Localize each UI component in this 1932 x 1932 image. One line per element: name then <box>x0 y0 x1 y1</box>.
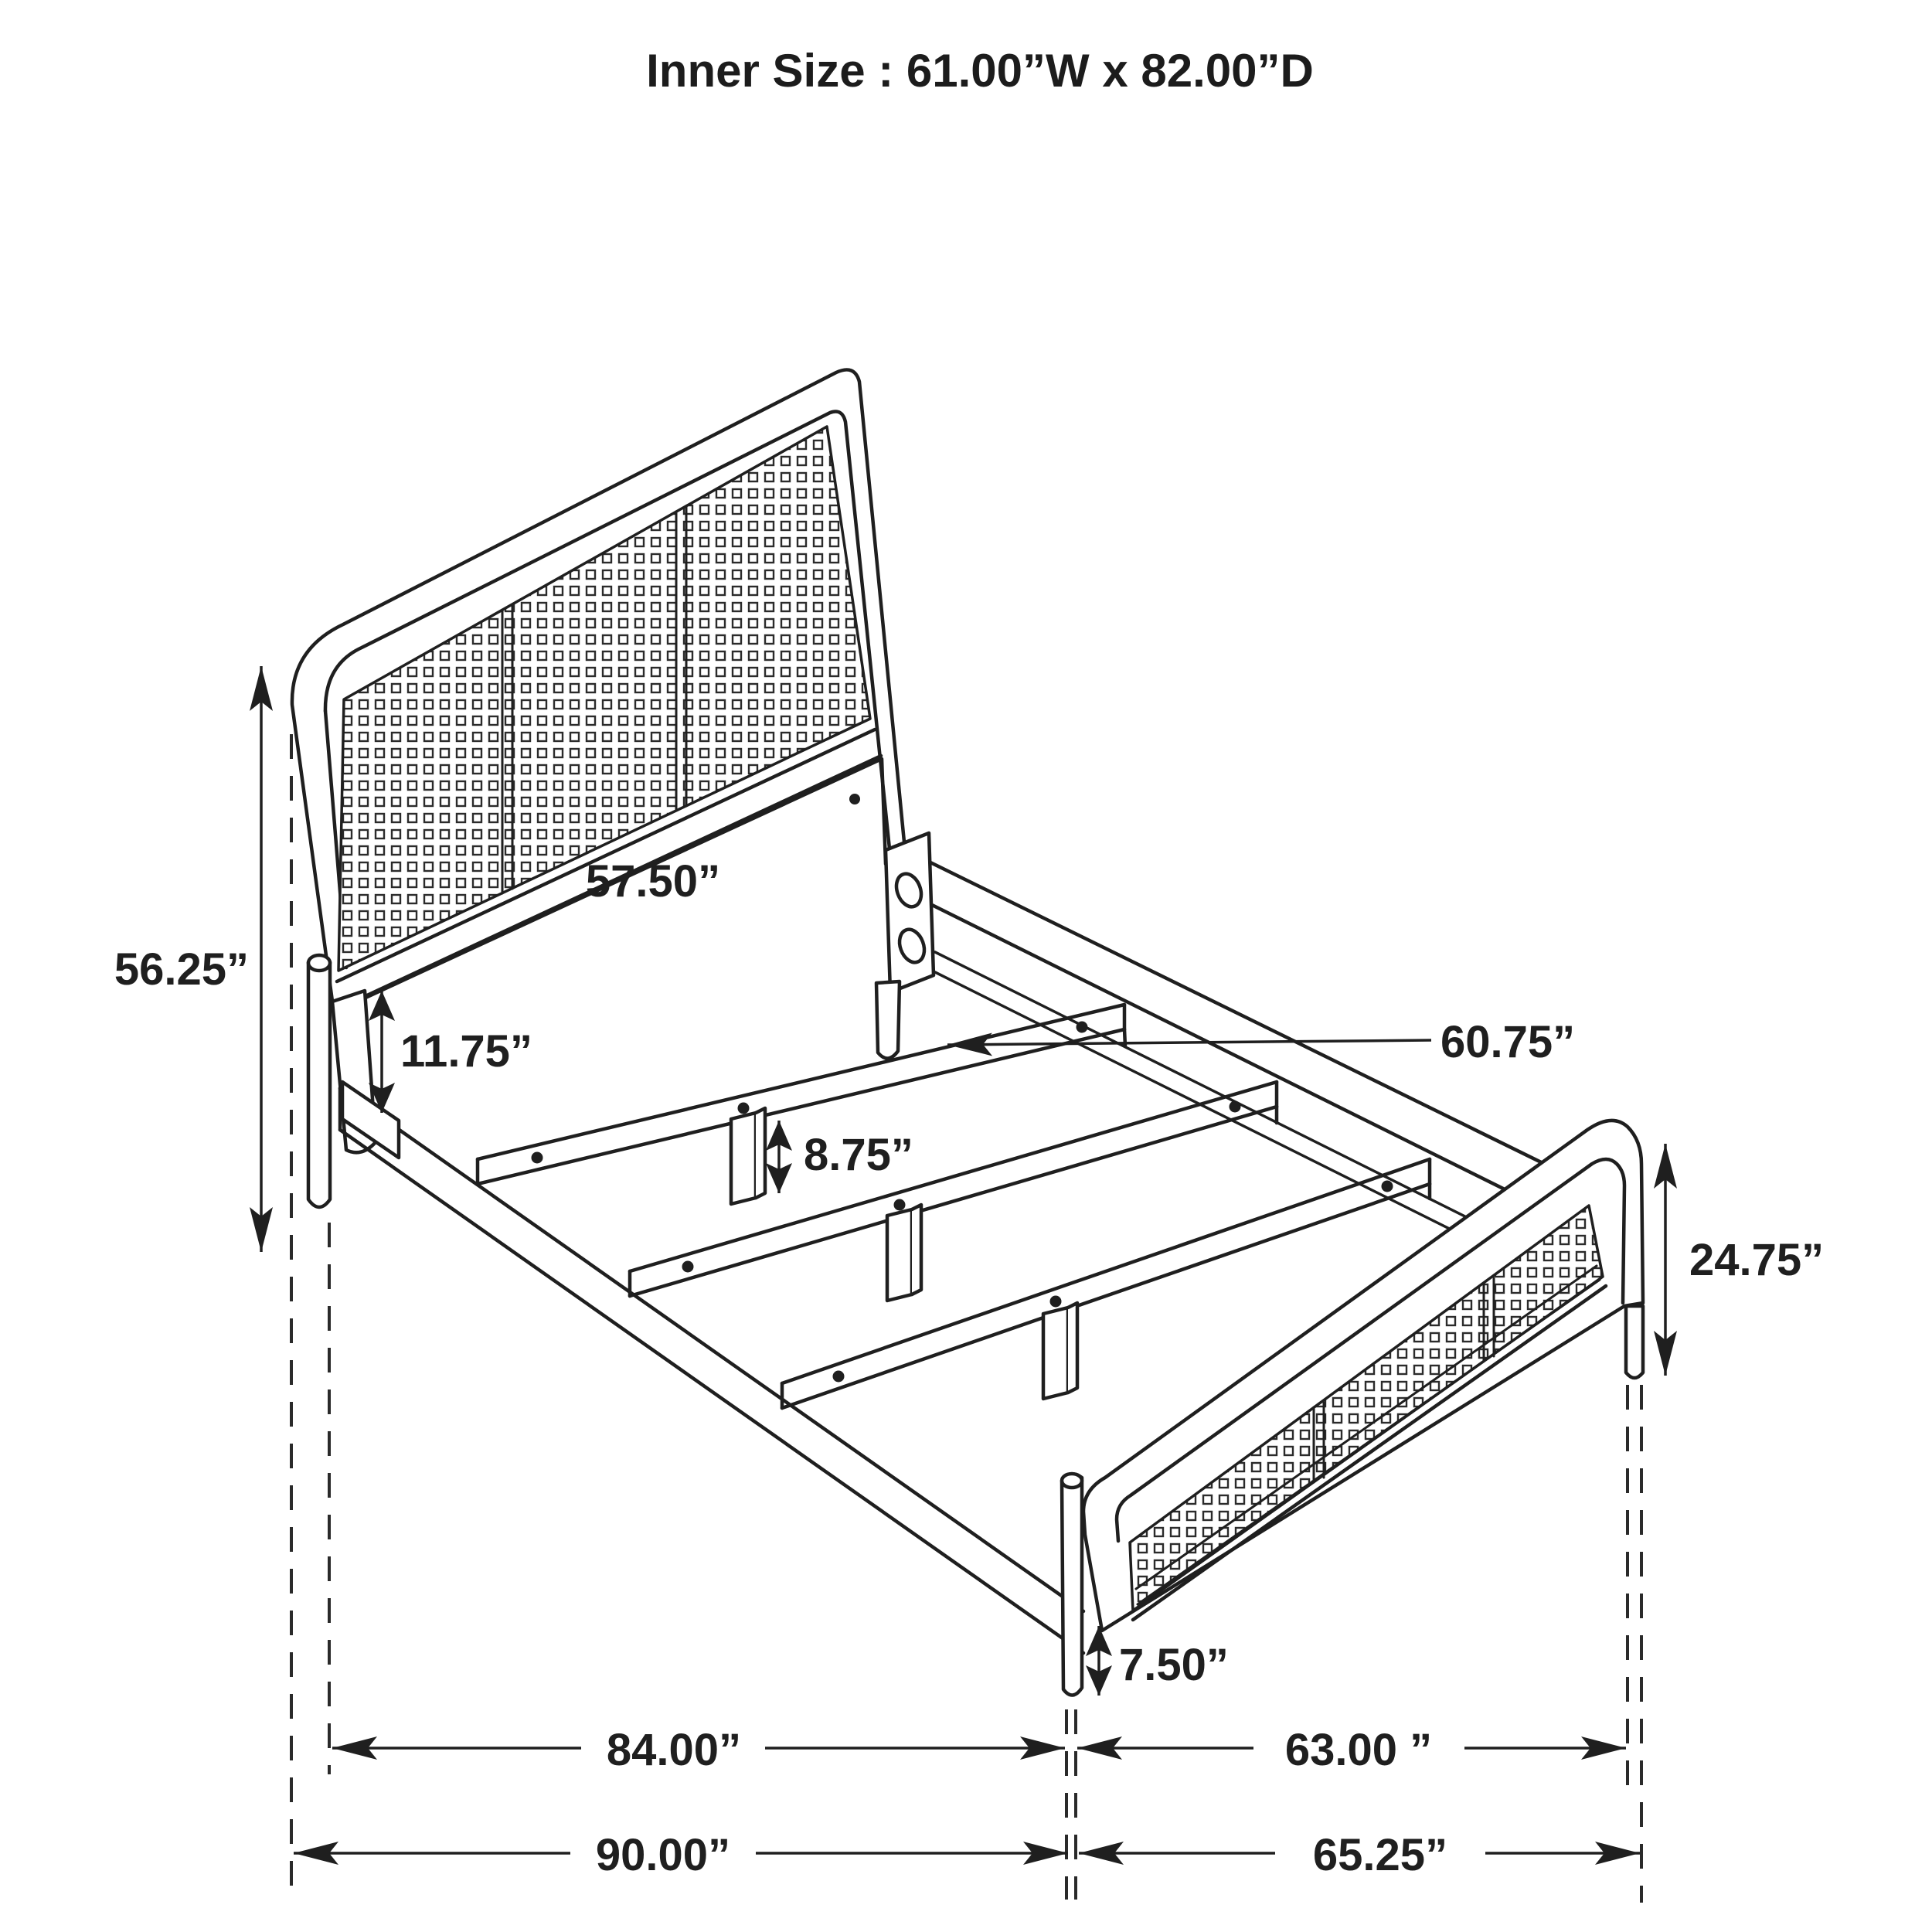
bed-frame-rails <box>308 833 1617 1653</box>
dim-center-leg-height: 8.75” <box>779 1121 913 1193</box>
headboard-front-leg <box>308 955 330 1207</box>
dim-label-60-75: 60.75” <box>1440 1017 1575 1067</box>
dim-footboard-width: 63.00 ” <box>1077 1725 1626 1775</box>
dim-footboard-height: 24.75” <box>1665 1144 1824 1376</box>
headboard-rear-leg <box>876 981 900 1059</box>
bracket-plate <box>886 833 934 992</box>
dim-label-7-50: 7.50” <box>1119 1640 1229 1690</box>
slat-2 <box>630 1082 1277 1296</box>
dim-label-63-00: 63.00 ” <box>1285 1725 1432 1775</box>
dim-label-11-75: 11.75” <box>400 1026 532 1077</box>
dim-footboard-leg-height: 7.50” <box>1099 1626 1229 1696</box>
footboard-front-leg <box>1062 1474 1082 1696</box>
dim-label-24-75: 24.75” <box>1689 1235 1824 1285</box>
dim-overall-width: 65.25” <box>1079 1830 1640 1880</box>
headboard-bracket <box>886 833 934 992</box>
dim-overall-length: 90.00” <box>294 1830 1068 1880</box>
dim-label-84-00: 84.00” <box>607 1725 741 1775</box>
footboard <box>1062 1121 1643 1696</box>
support-leg-3 <box>1043 1308 1068 1399</box>
headboard-screw <box>849 794 860 804</box>
support-leg-1 <box>731 1113 756 1204</box>
dim-label-8-75: 8.75” <box>804 1130 913 1180</box>
dim-label-65-25: 65.25” <box>1313 1830 1447 1880</box>
dim-panel-to-rail-gap: 11.75” <box>382 991 532 1113</box>
dim-headboard-height: 56.25” <box>114 666 261 1252</box>
dim-label-56-25: 56.25” <box>114 944 249 995</box>
dim-label-90-00: 90.00” <box>596 1830 730 1880</box>
dim-headboard-width: 57.50” <box>586 856 720 906</box>
slat-1 <box>478 1005 1125 1184</box>
support-leg-2 <box>887 1209 912 1301</box>
dim-label-57-50: 57.50” <box>586 856 720 906</box>
diagram-page: 56.25” 57.50” 11.75” 60.75” 8.75” 24.75”… <box>0 0 1932 1932</box>
headboard <box>292 369 906 1152</box>
diagram-title: Inner Size : 61.00”W x 82.00”D <box>646 45 1314 97</box>
bed-dimension-diagram: 56.25” 57.50” 11.75” 60.75” 8.75” 24.75”… <box>0 0 1932 1932</box>
dim-rail-length: 84.00” <box>332 1725 1065 1775</box>
footboard-right-leg <box>1626 1306 1643 1378</box>
front-side-rail <box>340 1082 1083 1653</box>
